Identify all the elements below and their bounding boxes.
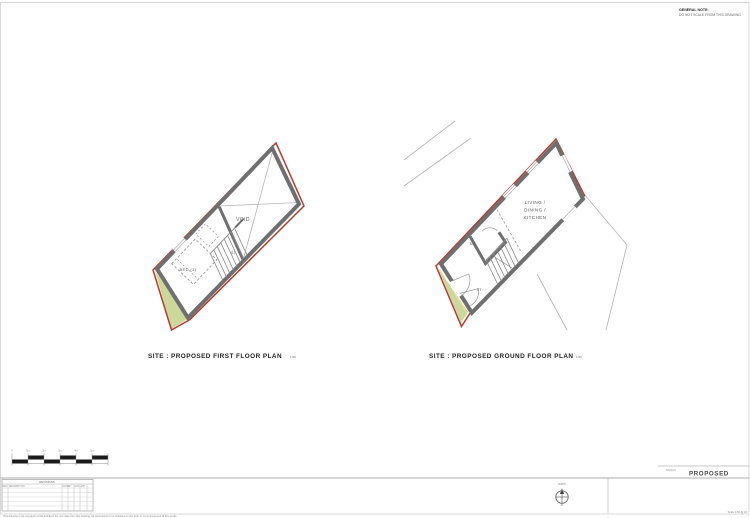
first-floor-scale: 1:50 [290,355,296,359]
status-value: PROPOSED [689,471,729,478]
scale-bar-label: 4m [74,449,78,453]
sheet-disclaimer: This drawing is the copyright of the arc… [3,514,177,518]
revision-table-title: REVISIONS [39,480,54,484]
scale-bar-segment [44,460,60,464]
scale-bar-label: 1m [26,449,30,453]
scale-bar-label: 3m [58,449,62,453]
scale-bar-segment [60,456,76,460]
scale-bar: 0 1m 2m 3m 4m 5m [11,449,108,466]
scale-bar-segment [92,456,108,460]
first-floor-caption: SITE : PROPOSED FIRST FLOOR PLAN [148,353,282,360]
revision-col-header: REV [3,486,8,488]
general-note-body: DO NOT SCALE FROM THIS DRAWING [679,13,741,17]
general-note-heading: GENERAL NOTE: [679,8,709,12]
context-line [404,121,455,160]
status-label: STATUS [666,468,676,472]
scale-bar-label: 2m [42,449,46,453]
context-line [584,194,627,245]
scale-bar-segment [76,460,92,464]
shower-label: SH. [470,242,477,246]
store-label-ground-floor: ST. [477,288,483,292]
scale-bar-label: 5m [90,449,94,453]
void-label: VOID [236,217,250,223]
store-label-first-floor: ST. [231,251,237,255]
building-ground-floor [429,141,598,314]
context-line [537,274,567,330]
ground-floor-caption: SITE : PROPOSED GROUND FLOOR PLAN [429,353,573,360]
north-arrow-icon: NORTH [556,483,569,506]
north-label: NORTH [558,483,567,486]
living-label-line3: KITCHEN [524,215,547,220]
scale-bar-segment [28,456,44,460]
sheet-note: Scale 1:50 @ A3 [728,510,748,514]
revision-col-header: APP [81,485,86,488]
revision-col-header: CHK [75,486,80,488]
scale-bar-label: 0 [11,449,13,453]
living-label-line1: LIVING / [525,200,546,205]
bed-label: BED (1) [179,267,196,272]
revision-col-header: BY [69,486,73,488]
revision-table-rows [2,488,93,506]
context-line [404,138,471,186]
scale-bar-segment [12,460,28,464]
drawing-sheet: VOID BED (1) ST. LIVING / DINING / KITCH… [0,0,750,518]
sheet-canvas: VOID BED (1) ST. LIVING / DINING / KITCH… [0,0,750,518]
page-border [1,3,750,515]
revision-col-header: DESCRIPTION [9,486,25,488]
context-line [606,245,627,330]
living-label-line2: DINING / [524,208,546,213]
revision-table: REVISIONS REV DESCRIPTION DATE BY CHK AP… [2,480,93,512]
ground-floor-scale: 1:50 [576,355,582,359]
